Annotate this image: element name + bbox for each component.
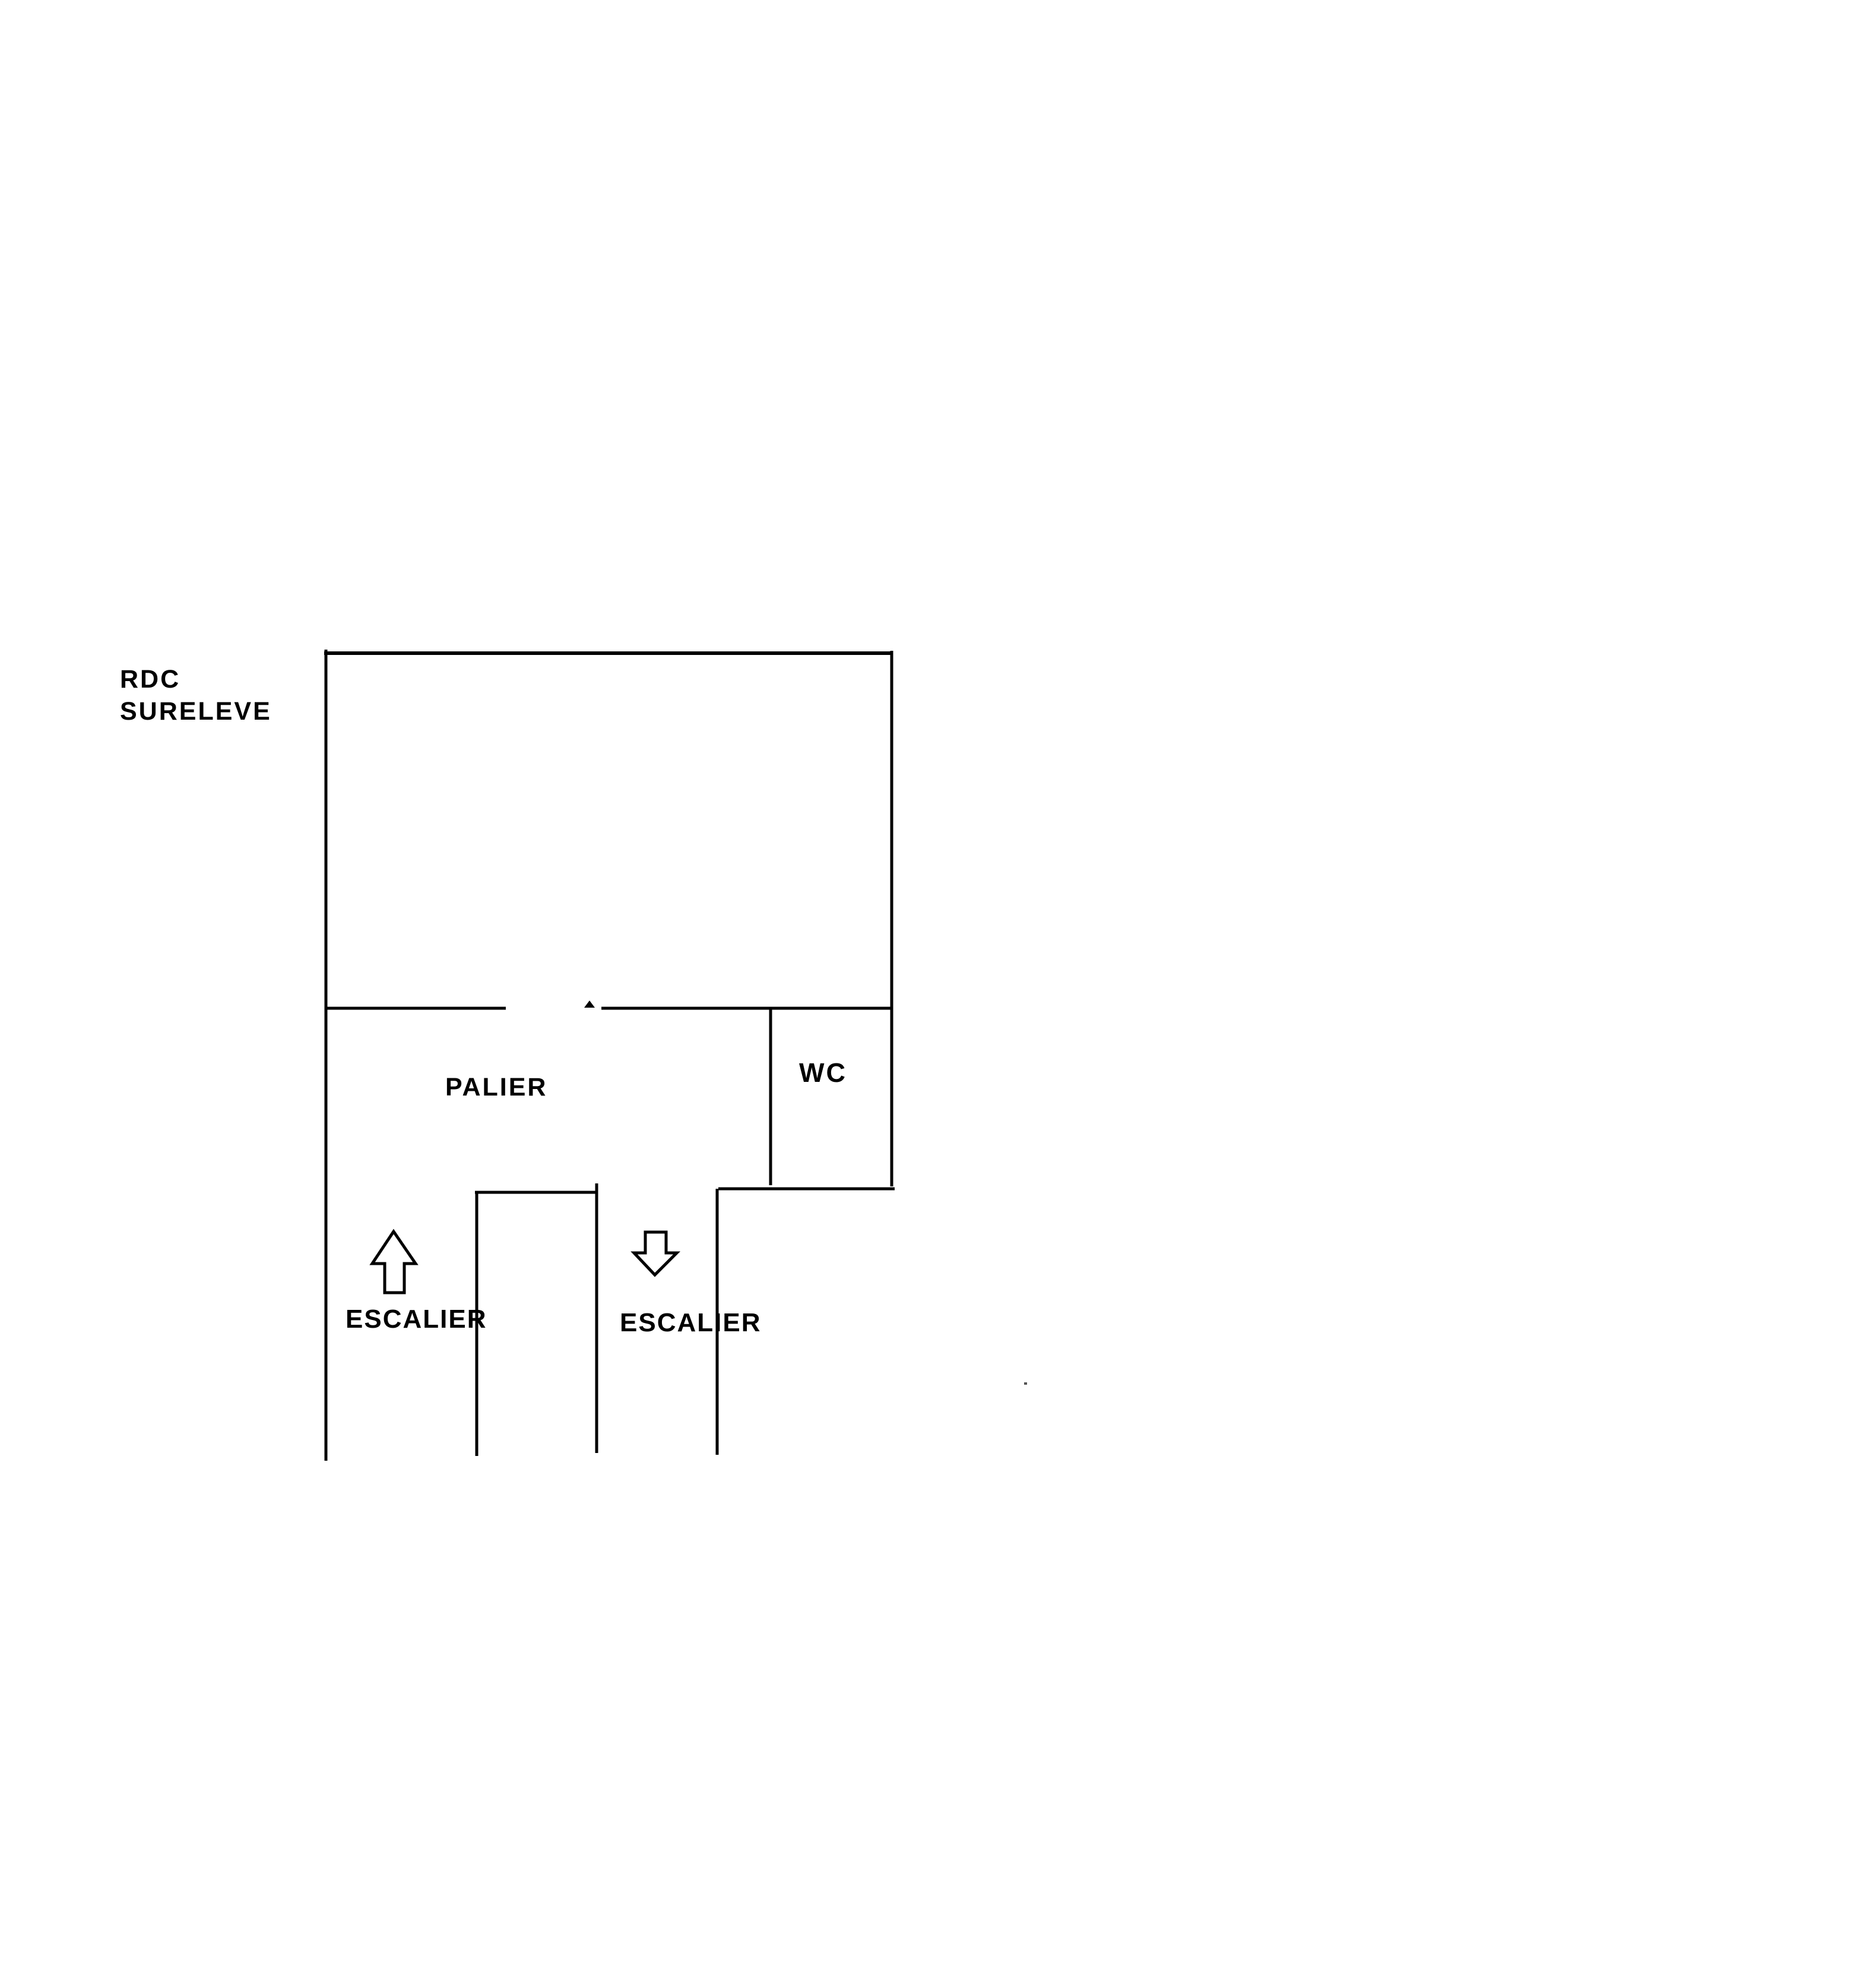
- arrow-down-icon: [634, 1232, 677, 1275]
- floor-title: RDC SURELEVE: [120, 663, 272, 727]
- stair-label-up: ESCALIER: [346, 1305, 487, 1334]
- floor-plan-drawing: [0, 0, 1857, 1988]
- room-label-palier: PALIER: [445, 1073, 548, 1102]
- floor-plan-canvas: RDC SURELEVE PALIER WC ESCALIER ESCALIER: [0, 0, 1857, 1988]
- floor-title-line1: RDC: [120, 663, 272, 695]
- arrow-up-icon: [372, 1232, 416, 1293]
- room-label-wc: WC: [799, 1058, 847, 1088]
- ink-speck: [1024, 1382, 1027, 1385]
- floor-title-line2: SURELEVE: [120, 695, 272, 727]
- stair-label-down: ESCALIER: [620, 1308, 761, 1338]
- door-gap-mark: [584, 1001, 595, 1008]
